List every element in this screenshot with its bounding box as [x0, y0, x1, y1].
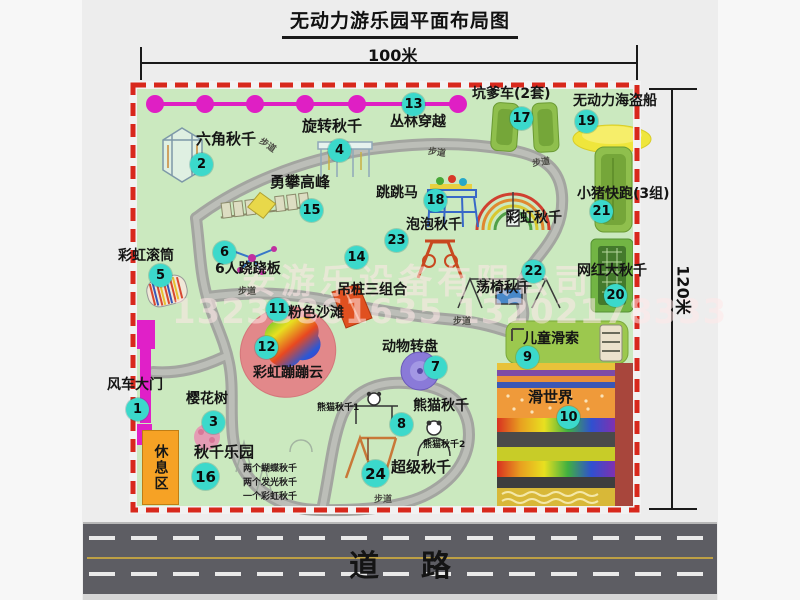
road-label: 道 路 — [83, 541, 717, 585]
attraction-17-label: 坑爹车(2套) — [472, 87, 551, 102]
attraction-8-label: 熊猫秋千 — [413, 399, 469, 414]
badge-7: 7 — [424, 356, 447, 379]
swing-park-subitem: 两个蝴蝶秋千 — [243, 461, 297, 474]
attraction-11-label: 粉色沙滩 — [288, 306, 344, 321]
badge-24: 24 — [362, 460, 389, 487]
attraction-19-label: 无动力海盗船 — [573, 94, 657, 109]
attraction-23-label: 泡泡秋千 — [406, 218, 462, 233]
swing-park-subitem: 两个发光秋千 — [243, 475, 297, 488]
badge-17: 17 — [510, 107, 533, 130]
badge-13: 13 — [402, 93, 425, 116]
road: 道 路 — [83, 522, 717, 596]
badge-11: 11 — [266, 298, 289, 321]
attraction-6-label: 6人跷跷板 — [215, 262, 281, 277]
attraction-3-label: 樱花树 — [186, 392, 228, 407]
badge-16: 16 — [192, 463, 219, 490]
rest-area: 休息区 — [142, 430, 179, 505]
attraction-21-label: 小猪快跑(3组) — [577, 187, 670, 202]
attraction-7-label: 动物转盘 — [382, 340, 438, 355]
attraction-20-label: 网红大秋千 — [577, 264, 647, 279]
attraction-4-label: 旋转秋千 — [302, 119, 362, 135]
path-label: 步道 — [427, 144, 447, 159]
badge-19: 19 — [575, 110, 598, 133]
path-label: 步道 — [453, 314, 471, 327]
attraction-18-label: 跳跳马 — [376, 186, 418, 201]
path-label: 步道 — [374, 492, 392, 505]
badge-18: 18 — [424, 189, 447, 212]
page-title: 无动力游乐园平面布局图 — [282, 6, 518, 39]
badge-23: 23 — [385, 229, 408, 252]
panda-swing-2-label: 熊猫秋千2 — [423, 441, 465, 450]
road-lower-margin — [83, 594, 717, 600]
attraction-2-label: 六角秋千 — [196, 132, 256, 148]
attraction-1-label: 风车大门 — [107, 378, 163, 393]
park-layout-screenshot: 安游乐设备有限公司 13233861635 13202178333 无动力游乐园… — [0, 0, 800, 600]
badge-10: 10 — [557, 406, 580, 429]
attraction-10-label: 滑世界 — [528, 390, 573, 406]
badge-5: 5 — [149, 264, 172, 287]
badge-21: 21 — [590, 200, 613, 223]
slide-world-structure — [497, 363, 633, 506]
attraction-14-label: 吊桩三组合 — [337, 283, 407, 298]
swing-park-subitem: 一个彩虹秋千 — [243, 489, 297, 502]
attraction-15-label: 勇攀高峰 — [270, 175, 330, 191]
badge-15: 15 — [300, 199, 323, 222]
badge-14: 14 — [345, 246, 368, 269]
badge-8: 8 — [390, 413, 413, 436]
rainbow-swing-label: 彩虹秋千 — [506, 211, 562, 226]
path-label: 步道 — [238, 284, 256, 297]
attraction-13-label: 丛林穿越 — [390, 115, 446, 130]
badge-2: 2 — [190, 153, 213, 176]
badge-12: 12 — [255, 336, 278, 359]
rest-area-label: 休息区 — [151, 444, 171, 492]
attraction-9-label: 儿童滑索 — [523, 332, 579, 347]
width-dimension-label: 100米 — [368, 42, 417, 66]
badge-6: 6 — [213, 241, 236, 264]
attraction-24-label: 超级秋千 — [391, 460, 451, 476]
attraction-12-label: 彩虹蹦蹦云 — [253, 366, 323, 381]
badge-4: 4 — [328, 139, 351, 162]
attraction-16-label: 秋千乐园 — [194, 445, 254, 461]
badge-20: 20 — [604, 284, 627, 307]
path-label: 步道 — [531, 154, 551, 169]
road-dash-line — [89, 536, 711, 540]
height-dimension-label: 120米 — [673, 265, 697, 314]
badge-22: 22 — [522, 260, 545, 283]
attraction-5-label: 彩虹滚筒 — [118, 249, 174, 264]
badge-1: 1 — [126, 398, 149, 421]
panda-swing-1-label: 熊猫秋千1 — [317, 404, 359, 413]
attraction-22-label: 荡椅秋千 — [476, 281, 532, 296]
badge-3: 3 — [202, 411, 225, 434]
badge-9: 9 — [516, 346, 539, 369]
